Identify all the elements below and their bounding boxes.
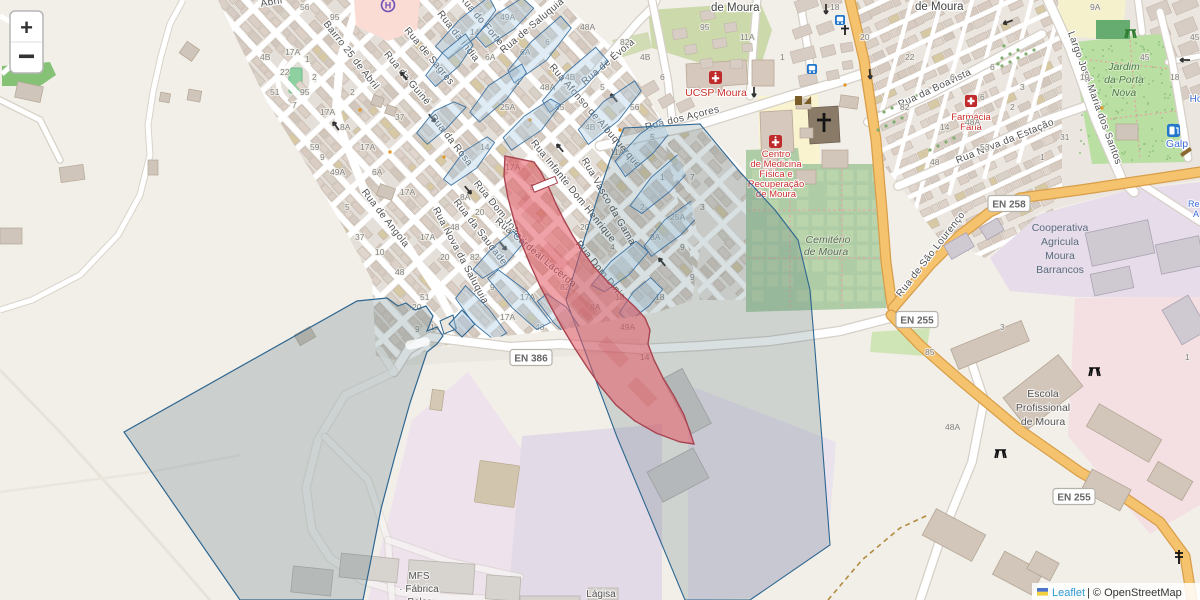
svg-text:17A: 17A [400,187,415,197]
svg-text:20: 20 [440,252,450,262]
svg-text:9A: 9A [1090,2,1101,12]
svg-text:56: 56 [300,2,310,12]
svg-text:14: 14 [940,122,950,132]
svg-text:82: 82 [470,252,480,262]
svg-text:1: 1 [780,52,785,62]
svg-text:6: 6 [660,72,665,82]
svg-text:48A: 48A [965,117,980,127]
svg-text:20: 20 [475,207,485,217]
svg-text:48: 48 [450,222,460,232]
svg-text:de Moura: de Moura [804,246,849,258]
svg-text:25A: 25A [500,102,515,112]
svg-text:95: 95 [330,12,340,22]
svg-text:7: 7 [292,100,297,110]
svg-text:11A: 11A [740,32,755,42]
svg-text:45: 45 [1140,52,1150,62]
svg-text:+: + [20,15,33,40]
svg-text:4B: 4B [640,52,651,62]
svg-text:6A: 6A [372,167,383,177]
svg-text:MFS: MFS [408,571,429,582]
svg-text:45: 45 [1190,32,1200,42]
svg-text:17A: 17A [320,107,335,117]
svg-text:17A: 17A [420,232,435,242]
svg-text:48A: 48A [580,22,595,32]
svg-text:EN 258: EN 258 [992,200,1026,211]
svg-text:H: H [385,1,392,11]
svg-text:17A: 17A [360,142,375,152]
svg-text:de Moura: de Moura [1021,416,1066,428]
svg-text:59: 59 [310,142,320,152]
svg-text:95: 95 [700,22,710,32]
svg-text:da Porta: da Porta [1104,74,1144,86]
svg-text:Galp: Galp [1166,138,1188,150]
svg-text:3: 3 [1020,82,1025,92]
svg-text:1: 1 [1185,352,1190,362]
svg-text:17A: 17A [285,47,300,57]
svg-text:| © OpenStreetMap: | © OpenStreetMap [1087,587,1182,599]
svg-text:22: 22 [280,67,290,77]
svg-text:51: 51 [420,292,430,302]
svg-text:48: 48 [930,157,940,167]
svg-text:1: 1 [305,54,310,64]
svg-text:de Moura: de Moura [915,1,964,13]
svg-text:Profissional: Profissional [1016,402,1070,414]
svg-text:EN 255: EN 255 [900,316,934,327]
svg-text:Barrancos: Barrancos [1036,264,1084,276]
svg-text:2: 2 [350,87,355,97]
svg-text:Ho: Ho [1190,94,1200,105]
svg-text:5: 5 [600,82,605,92]
svg-text:de Moura: de Moura [711,2,760,14]
svg-text:Lágisa: Lágisa [586,589,616,600]
svg-text:82: 82 [620,37,630,47]
svg-text:6: 6 [980,92,985,102]
svg-text:Escola: Escola [1027,388,1059,400]
svg-text:1: 1 [1040,152,1045,162]
svg-text:6: 6 [950,72,955,82]
svg-text:95: 95 [300,87,310,97]
svg-text:Cemitério: Cemitério [806,234,851,246]
svg-text:6: 6 [990,62,995,72]
svg-text:EN 386: EN 386 [514,354,548,365]
svg-text:17A: 17A [500,312,515,322]
svg-text:· Fábrica: · Fábrica [399,584,439,595]
svg-text:2: 2 [312,72,317,82]
svg-text:53: 53 [980,142,990,152]
svg-text:9: 9 [320,152,325,162]
svg-text:48: 48 [395,267,405,277]
svg-text:Jardim: Jardim [1107,61,1140,73]
svg-text:4B: 4B [260,52,271,62]
svg-text:2: 2 [1010,102,1015,112]
svg-text:5: 5 [345,202,350,212]
svg-text:18: 18 [1170,72,1180,82]
svg-text:3: 3 [1000,322,1005,332]
svg-text:A: A [1193,209,1199,219]
svg-text:51: 51 [270,87,280,97]
svg-text:37: 37 [355,232,365,242]
svg-text:22: 22 [905,52,915,62]
svg-text:Res: Res [1188,199,1200,209]
svg-text:49A: 49A [330,167,345,177]
svg-text:82: 82 [900,102,910,112]
svg-text:Nova: Nova [1112,87,1137,99]
svg-text:18: 18 [830,2,840,12]
svg-text:Cooperativa: Cooperativa [1032,222,1089,234]
svg-text:UCSP Moura: UCSP Moura [685,87,747,99]
svg-text:10: 10 [1080,72,1090,82]
svg-text:Moura: Moura [1045,250,1075,262]
svg-text:Leaflet: Leaflet [1052,587,1085,599]
svg-text:31: 31 [1060,132,1070,142]
svg-text:Agricula: Agricula [1041,236,1079,248]
svg-text:8A: 8A [340,122,351,132]
svg-text:10: 10 [375,247,385,257]
svg-text:6A: 6A [485,52,496,62]
svg-text:EN 255: EN 255 [1057,493,1091,504]
svg-text:37: 37 [395,112,405,122]
svg-text:85: 85 [925,347,935,357]
svg-text:48A: 48A [945,422,960,432]
svg-text:20: 20 [860,32,870,42]
